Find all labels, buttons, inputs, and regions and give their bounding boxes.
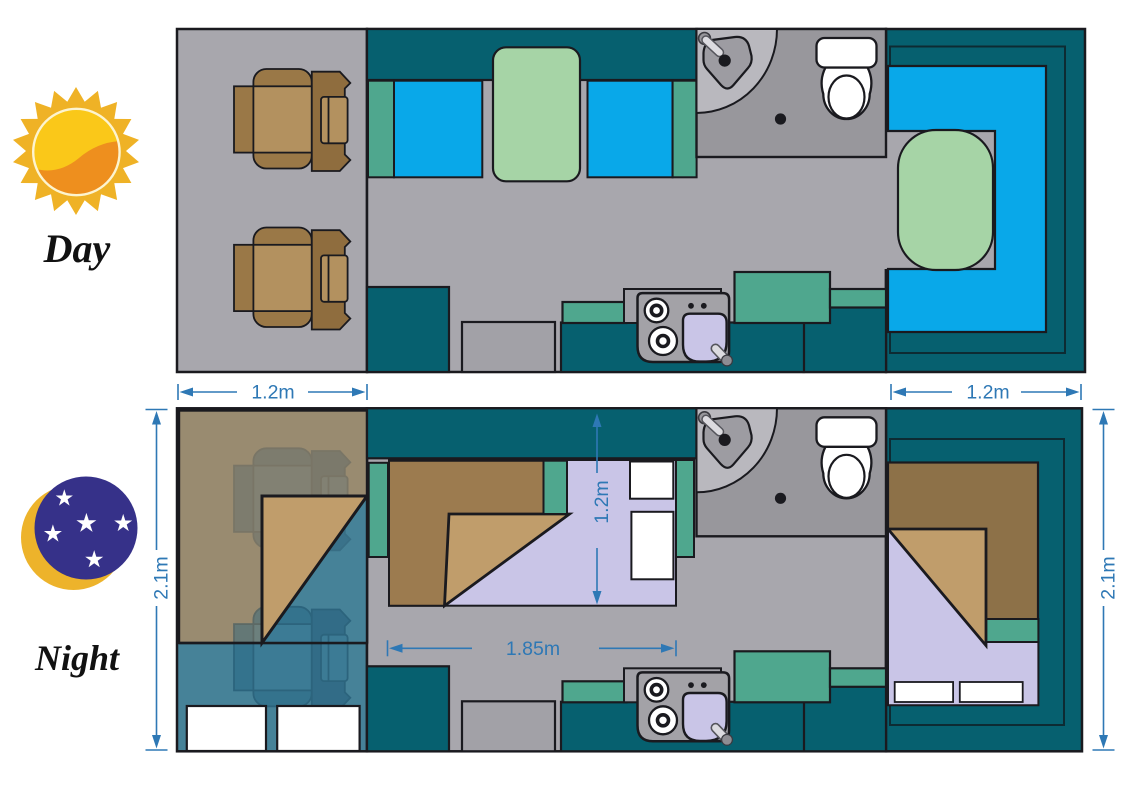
svg-text:1.85m: 1.85m bbox=[506, 638, 560, 660]
svg-text:1.2m: 1.2m bbox=[591, 480, 613, 523]
svg-text:2.1m: 2.1m bbox=[1098, 556, 1120, 599]
svg-text:2.1m: 2.1m bbox=[151, 556, 173, 599]
svg-text:1.2m: 1.2m bbox=[966, 382, 1009, 404]
svg-text:Night: Night bbox=[34, 638, 120, 678]
svg-text:Day: Day bbox=[43, 226, 111, 271]
svg-text:1.2m: 1.2m bbox=[251, 382, 294, 404]
